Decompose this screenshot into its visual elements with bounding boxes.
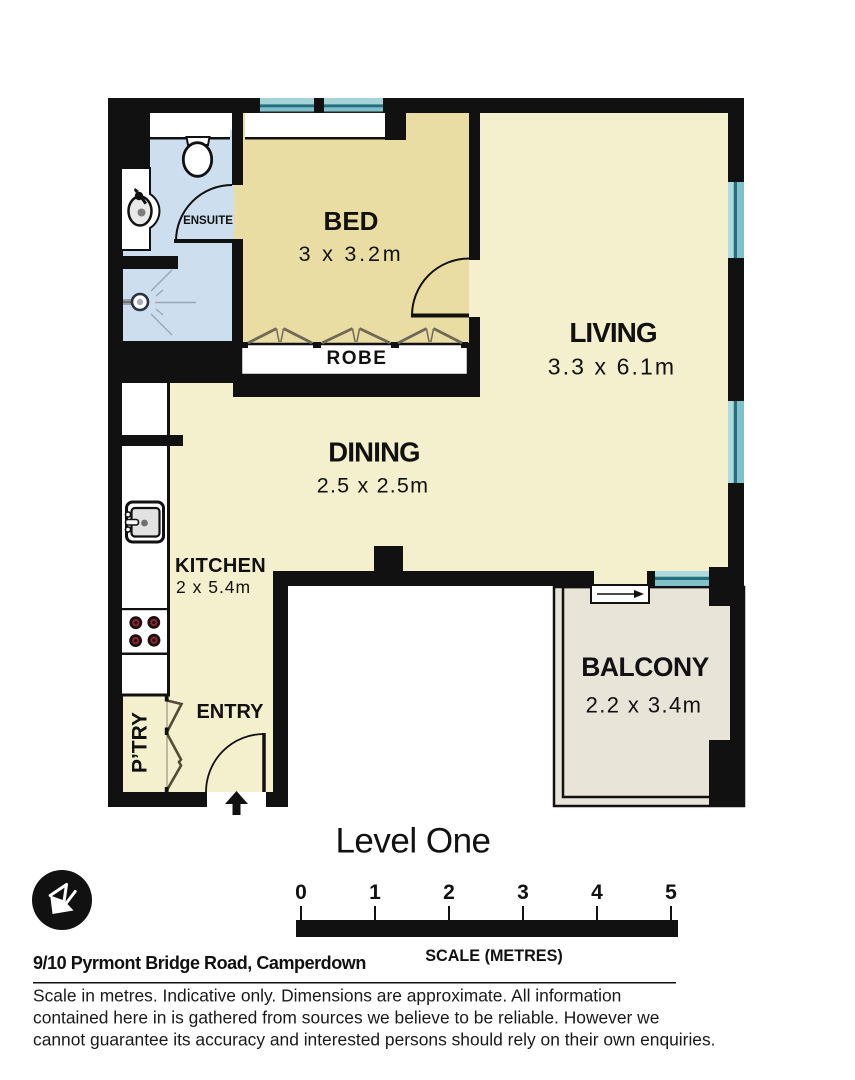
svg-text:0: 0: [295, 881, 307, 904]
svg-text:LIVING: LIVING: [569, 317, 657, 348]
svg-text:3 x 3.2m: 3 x 3.2m: [299, 242, 404, 266]
svg-text:2.2 x 3.4m: 2.2 x 3.4m: [586, 693, 703, 718]
svg-text:2.5 x 2.5m: 2.5 x 2.5m: [317, 474, 429, 498]
svg-text:ROBE: ROBE: [327, 348, 388, 369]
svg-text:Scale in metres. Indicative on: Scale in metres. Indicative only. Dimens…: [33, 986, 621, 1006]
svg-text:BED: BED: [324, 206, 379, 236]
svg-text:3.3 x 6.1m: 3.3 x 6.1m: [548, 354, 676, 380]
svg-text:KITCHEN: KITCHEN: [175, 555, 266, 577]
svg-text:contained here in is gathered: contained here in is gathered from sourc…: [33, 1008, 659, 1028]
svg-text:DINING: DINING: [328, 437, 419, 468]
svg-text:BALCONY: BALCONY: [581, 652, 709, 682]
svg-text:ENTRY: ENTRY: [196, 701, 264, 723]
svg-text:cannot guarantee its accuracy: cannot guarantee its accuracy and intere…: [33, 1030, 716, 1050]
svg-text:Level One: Level One: [335, 822, 490, 861]
svg-text:5: 5: [665, 881, 677, 904]
svg-text:9/10 Pyrmont Bridge Road, Camp: 9/10 Pyrmont Bridge Road, Camperdown: [33, 953, 366, 973]
svg-text:3: 3: [517, 881, 529, 904]
svg-text:ENSUITE: ENSUITE: [183, 215, 233, 227]
svg-text:2: 2: [443, 881, 455, 904]
svg-text:1: 1: [369, 881, 381, 904]
svg-text:4: 4: [591, 881, 603, 904]
svg-text:P’TRY: P’TRY: [129, 712, 152, 773]
svg-text:2 x 5.4m: 2 x 5.4m: [176, 577, 251, 597]
svg-text:SCALE (METRES): SCALE (METRES): [425, 947, 563, 965]
